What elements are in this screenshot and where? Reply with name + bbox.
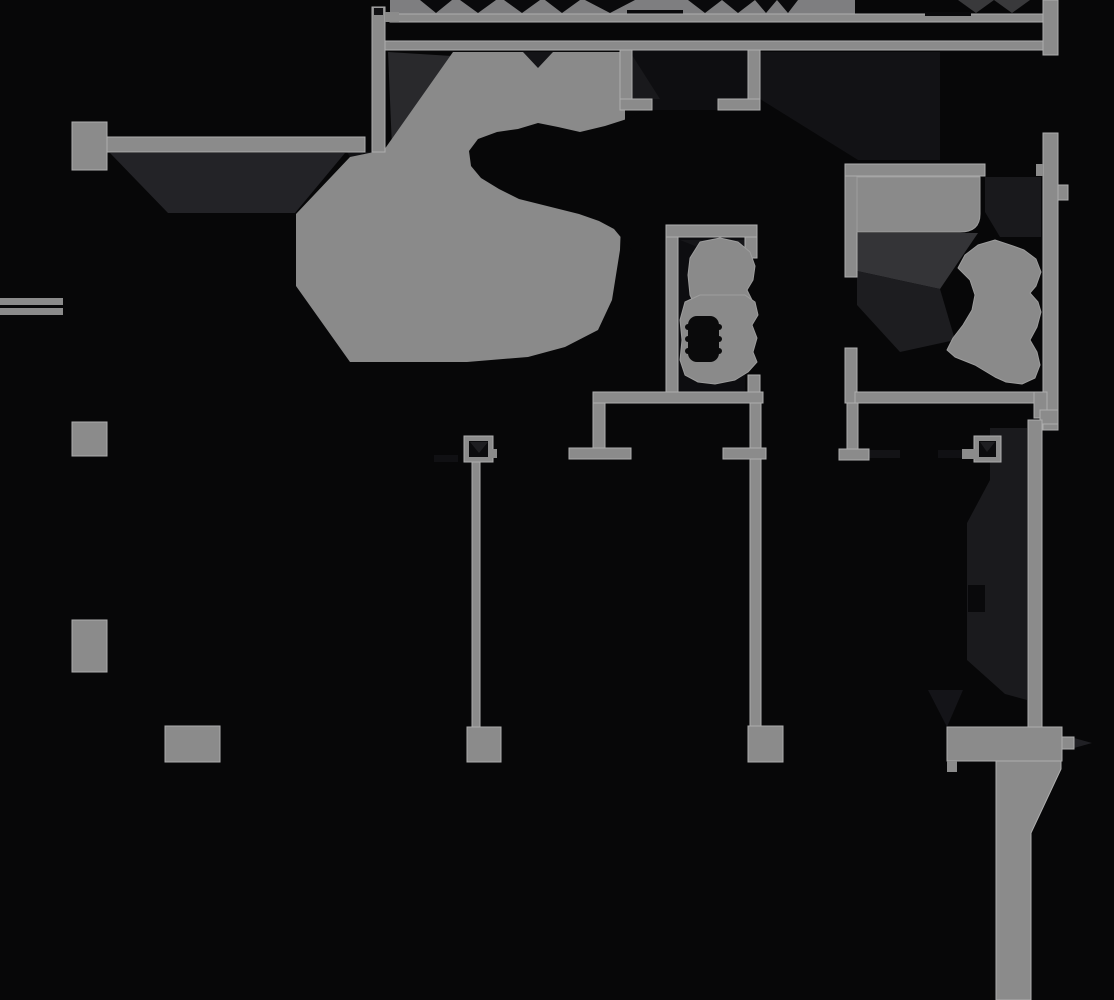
center-tee-cross <box>723 448 766 459</box>
bath-tee-foot <box>839 449 869 460</box>
band-blob <box>798 0 851 15</box>
hollow-column-2 <box>962 436 1001 462</box>
center-partition-base <box>748 726 783 762</box>
arrow-mark <box>1074 738 1092 748</box>
glazing-mullion <box>472 462 480 727</box>
toilet-seat-hole <box>688 316 719 362</box>
column-left-2 <box>72 620 107 672</box>
lower-right-wall <box>1028 420 1042 728</box>
left-pier <box>72 122 107 170</box>
mid-bottom-wall <box>593 392 763 403</box>
spiral-stair <box>296 52 650 362</box>
column-left-1 <box>72 422 107 456</box>
header-beam <box>947 727 1062 761</box>
header-tab <box>1062 737 1074 749</box>
bath-tee-stem <box>847 403 858 449</box>
floor-plan-page <box>0 0 1114 1000</box>
wc-left-wall <box>666 225 678 392</box>
top-main-wall <box>383 41 1058 50</box>
left-tee-foot <box>569 448 631 459</box>
corridor-jamb-right-foot <box>718 99 760 110</box>
corridor-jamb-left-foot <box>620 99 652 110</box>
wc-top-wall <box>666 225 757 237</box>
shadow-right-of-tub <box>985 177 1041 237</box>
dark-box <box>968 585 985 612</box>
hollow-column-2-nub <box>962 449 975 459</box>
band-slit <box>925 12 971 16</box>
edge-line-2 <box>0 308 63 315</box>
column-left-3 <box>165 726 220 762</box>
hollow-column-1-nub <box>490 449 497 458</box>
left-horizontal-wall <box>107 137 365 152</box>
hollow-column-1 <box>464 436 497 462</box>
tapered-pier <box>996 761 1061 1000</box>
toilet <box>680 238 758 384</box>
bath-left-wall-upper <box>845 164 857 277</box>
faint-dash-1 <box>434 455 458 462</box>
shadow-right-of-corridor <box>760 52 940 160</box>
step-wall-nub <box>1040 410 1058 424</box>
bath-bottom-wall <box>855 392 1046 403</box>
corridor-jamb-right <box>748 50 760 99</box>
wall-connector <box>385 12 399 22</box>
wall-notch <box>374 8 383 15</box>
upper-left-vert-wall <box>372 7 385 152</box>
right-wall-mid <box>1043 133 1058 430</box>
bathtub <box>857 177 980 232</box>
floor-plan-canvas <box>0 0 1114 1000</box>
mullion-base <box>467 727 501 762</box>
band-teeth-dark <box>958 0 1030 13</box>
bath-top-wall <box>845 164 985 176</box>
section-cut-band <box>390 0 1043 22</box>
left-tee-stem <box>593 403 605 449</box>
bottom-right-pier <box>947 727 1074 1000</box>
right-wall-top <box>1043 0 1058 55</box>
vanity-sink <box>947 240 1041 384</box>
faint-dash-3 <box>938 450 962 458</box>
edge-line-1 <box>0 298 63 305</box>
shadow-left-of-header <box>928 690 963 727</box>
right-wall-nub <box>1036 164 1043 176</box>
shadow-lower-right <box>967 428 1027 700</box>
header-foot-tab <box>947 761 957 772</box>
right-wall-tab <box>1058 185 1068 200</box>
